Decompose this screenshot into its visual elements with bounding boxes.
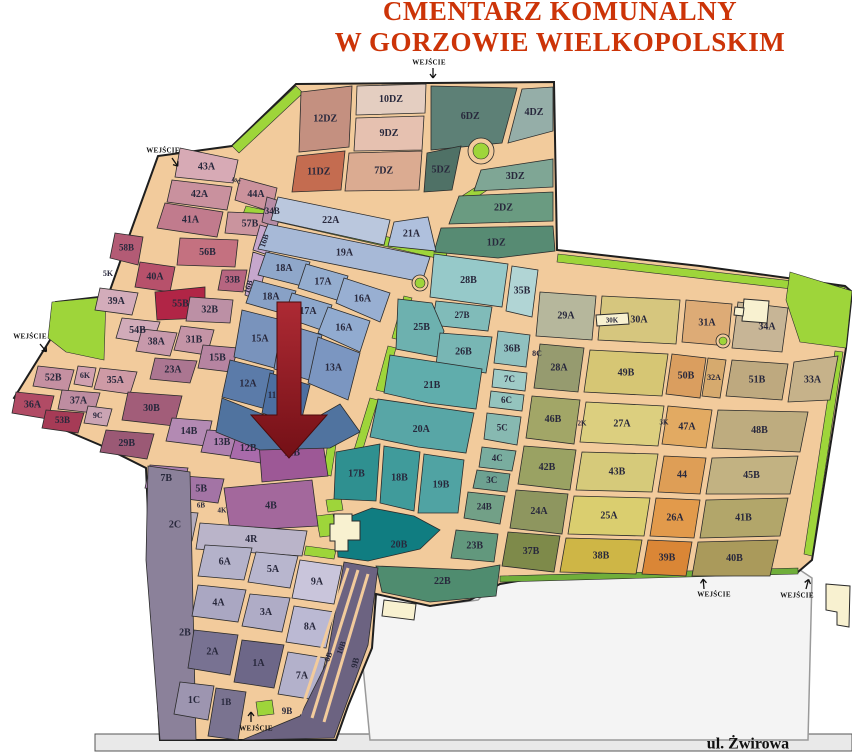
section-label-49b: 49B <box>618 367 635 378</box>
section-label-44: 44 <box>677 469 687 480</box>
section-label-13b: 13B <box>214 437 231 448</box>
label-30k-10: 30K <box>606 317 619 325</box>
section-label-5dz: 5DZ <box>432 165 451 176</box>
label-11-0: 11 <box>268 390 277 400</box>
section-label-31a: 31A <box>698 317 716 328</box>
roundabout-green-1 <box>719 337 727 345</box>
section-label-53b: 53B <box>55 415 70 425</box>
section-label-4a: 4A <box>212 598 225 609</box>
section-label-12a: 12A <box>239 379 257 390</box>
green-area-12 <box>326 498 343 512</box>
entrance-label-2: WEJŚCIE <box>13 333 47 341</box>
section-label-19a: 19A <box>336 247 354 258</box>
label-3k-9: 3K <box>660 419 670 427</box>
section-label-39a: 39A <box>108 296 126 307</box>
entrance-label-5: WEJŚCIE <box>780 592 814 600</box>
section-label-23b: 23B <box>466 540 483 551</box>
section-label-5c: 5C <box>497 423 508 433</box>
section-label-54b: 54B <box>129 325 146 336</box>
section-label-35a: 35A <box>107 375 125 386</box>
section-label-24b: 24B <box>477 502 492 512</box>
section-label-30b: 30B <box>143 403 160 414</box>
section-label-27b: 27B <box>454 310 469 320</box>
building-1 <box>742 299 769 323</box>
section-label-39b: 39B <box>659 552 676 563</box>
section-label-40a: 40A <box>146 271 164 282</box>
section-label-17a: 17A <box>314 277 332 288</box>
section-label-11dz: 11DZ <box>307 167 331 178</box>
section-label-3c: 3C <box>486 475 497 485</box>
label-9b-6: 9B <box>282 706 293 716</box>
section-label-58b: 58B <box>119 242 134 252</box>
section-label-13a: 13A <box>325 363 343 374</box>
label-4k-15: 4K <box>218 507 228 515</box>
section-label-1a: 1A <box>252 658 265 669</box>
section-label-57b: 57B <box>242 218 259 229</box>
section-label-43b: 43B <box>609 466 626 477</box>
section-label-32b: 32B <box>201 305 218 316</box>
section-label-5a: 5A <box>267 564 280 575</box>
label-6b-14: 6B <box>197 502 206 510</box>
section-label-18a: 18A <box>262 292 280 303</box>
label-5k-13: 5K <box>103 269 114 278</box>
section-label-1c: 1C <box>188 695 200 706</box>
section-label-17a: 17A <box>299 306 317 317</box>
section-label-19b: 19B <box>433 479 450 490</box>
section-label-7a: 7A <box>296 670 309 681</box>
section-label-24a: 24A <box>530 506 548 517</box>
section-label-4c: 4C <box>492 453 503 463</box>
section-label-38b: 38B <box>593 550 610 561</box>
section-label-33b: 33B <box>225 275 240 285</box>
section-label-1dz: 1DZ <box>487 237 506 248</box>
section-label-3dz: 3DZ <box>506 171 525 182</box>
building-2 <box>734 307 744 316</box>
section-label-2c: 2C <box>169 520 181 531</box>
section-label-46b: 46B <box>545 414 562 425</box>
section-label-21a: 21A <box>403 228 421 239</box>
section-label-42b: 42B <box>539 462 556 473</box>
entrance-label-3: WEJŚCIE <box>239 725 273 733</box>
section-label-16a: 16A <box>354 293 372 304</box>
section-label-15a: 15A <box>251 334 269 345</box>
section-label-8a: 8A <box>304 621 317 632</box>
section-label-31b: 31B <box>186 335 203 346</box>
section-label-37b: 37B <box>523 546 540 557</box>
label-2k-8: 2K <box>578 420 588 428</box>
section-label-10dz: 10DZ <box>379 94 403 105</box>
section-label-51b: 51B <box>749 374 766 385</box>
section-label-5b: 5B <box>195 483 207 494</box>
label-1b-7: 1B <box>221 697 232 707</box>
section-label-26b: 26B <box>455 346 472 357</box>
section-label-50b: 50B <box>678 370 695 381</box>
section-label-23a: 23A <box>164 365 182 376</box>
section-label-4r: 4R <box>245 534 258 545</box>
section-label-6dz: 6DZ <box>461 111 480 122</box>
section-label-29b: 29B <box>118 438 135 449</box>
section-label-40b: 40B <box>726 553 743 564</box>
section-label-7c: 7C <box>504 374 515 384</box>
section-label-34b: 34B <box>265 206 280 216</box>
section-label-16a: 16A <box>335 323 353 334</box>
section-label-56b: 56B <box>199 247 216 258</box>
section-label-18a: 18A <box>275 263 293 274</box>
section-label-48b: 48B <box>751 425 768 436</box>
section-label-52b: 52B <box>45 373 62 384</box>
section-label-55b: 55B <box>172 299 189 310</box>
section-label-36a: 36A <box>24 399 42 410</box>
section-label-21b: 21B <box>424 380 441 391</box>
section-label-26a: 26A <box>666 512 684 523</box>
section-label-37a: 37A <box>70 396 88 407</box>
section-label-33a: 33A <box>804 374 822 385</box>
section-label-28b: 28B <box>460 275 477 286</box>
section-label-22b: 22B <box>434 576 451 587</box>
section-label-32a: 32A <box>707 373 721 382</box>
roundabout-green-0 <box>473 143 489 159</box>
section-label-9c: 9C <box>93 411 103 420</box>
section-label-20b: 20B <box>391 539 408 550</box>
section-label-12dz: 12DZ <box>313 114 337 125</box>
green-area-14 <box>256 700 274 716</box>
building-3 <box>826 584 850 627</box>
section-label-35b: 35B <box>514 285 531 296</box>
entrance-label-0: WEJŚCIE <box>412 59 446 67</box>
section-label-4dz: 4DZ <box>525 107 544 118</box>
entrance-arrow-icon-0 <box>430 68 436 78</box>
section-label-14b: 14B <box>181 426 198 437</box>
section-label-27a: 27A <box>613 418 631 429</box>
section-label-7b: 7B <box>160 473 172 484</box>
section-label-25a: 25A <box>600 510 618 521</box>
section-label-2b: 2B <box>179 627 191 638</box>
section-label-3a: 3A <box>260 607 273 618</box>
section-label-15b: 15B <box>209 353 226 364</box>
section-label-6a: 6A <box>219 557 232 568</box>
section-label-41a: 41A <box>182 214 200 225</box>
section-label-30a: 30A <box>630 314 648 325</box>
section-label-17b: 17B <box>348 468 365 479</box>
entrance-label-1: WEJŚCIE <box>146 147 180 155</box>
section-label-9dz: 9DZ <box>380 128 399 139</box>
section-label-38a: 38A <box>148 337 166 348</box>
section-label-28a: 28A <box>550 362 568 373</box>
section-label-6c: 6C <box>501 395 512 405</box>
section-label-45b: 45B <box>743 470 760 481</box>
section-label-42a: 42A <box>191 189 209 200</box>
section-label-36b: 36B <box>504 343 521 354</box>
roundabout-green-2 <box>415 278 425 288</box>
section-label-29a: 29A <box>557 310 575 321</box>
section-label-20a: 20A <box>413 424 431 435</box>
section-label-4b: 4B <box>265 501 277 512</box>
section-label-7dz: 7DZ <box>374 166 393 177</box>
section-label-2a: 2A <box>206 646 219 657</box>
building-4 <box>382 600 416 620</box>
street-label: ul. Żwirowa <box>707 734 789 753</box>
section-label-43a: 43A <box>198 161 216 172</box>
section-label-44a: 44A <box>247 189 265 200</box>
section-label-22a: 22A <box>322 215 340 226</box>
label-8c-11: 8C <box>532 349 542 358</box>
section-label-47a: 47A <box>678 421 696 432</box>
entrance-label-4: WEJŚCIE <box>697 591 731 599</box>
section-label-25b: 25B <box>413 322 430 333</box>
section-label-12b: 12B <box>240 443 257 454</box>
section-label-6k: 6K <box>80 371 91 380</box>
section-label-9a: 9A <box>311 576 324 587</box>
section-label-41b: 41B <box>735 512 752 523</box>
section-label-18b: 18B <box>391 472 408 483</box>
section-label-2dz: 2DZ <box>494 203 513 214</box>
cemetery-map-svg: 12DZ10DZ9DZ6DZ4DZ11DZ7DZ5DZ3DZ2DZ1DZ43A4… <box>0 0 852 753</box>
